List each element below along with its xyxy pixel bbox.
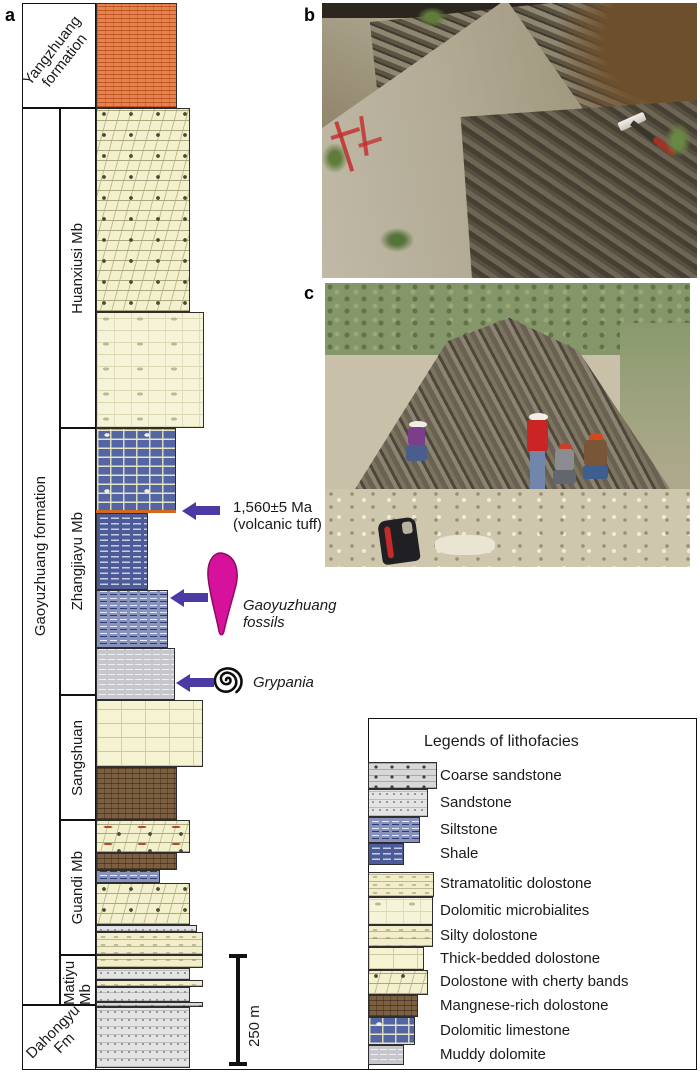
legend-swatch-dolomitic-limestone bbox=[368, 1017, 415, 1045]
legend-swatch-siltstone bbox=[368, 817, 420, 843]
grypania-text: Grypania bbox=[253, 674, 314, 691]
legend-swatch-stromatolitic-dolostone bbox=[368, 872, 434, 897]
photo-b-plant-1 bbox=[417, 7, 447, 27]
member-matiyu-label: Matiyu Mb bbox=[62, 955, 94, 1005]
person-2-jeans bbox=[530, 451, 545, 489]
layer-silty-dolostone-2 bbox=[96, 980, 203, 987]
tuff-note-line: (volcanic tuff) bbox=[233, 516, 322, 533]
layer-sandstone-band-3 bbox=[96, 987, 190, 1002]
fossils-line1: Gaoyuzhuang bbox=[243, 597, 336, 614]
scale-bar bbox=[236, 956, 240, 1064]
panel-c-label: c bbox=[304, 283, 314, 304]
layer-cherty-dolostone-lower bbox=[96, 883, 190, 925]
photo-b-plant-2 bbox=[380, 228, 414, 252]
legend-label-sandstone: Sandstone bbox=[440, 794, 512, 812]
volcanic-tuff-bed bbox=[96, 510, 176, 513]
layer-dolomitic-microbialites bbox=[96, 312, 204, 428]
member-matiyu-cell: Matiyu Mb bbox=[59, 955, 96, 1005]
person-4-torso bbox=[584, 440, 607, 466]
legend-label-muddy-dolomite: Muddy dolomite bbox=[440, 1046, 546, 1064]
legend-swatch-thick-bedded-dolostone bbox=[368, 947, 424, 970]
legend-swatch-sandstone bbox=[368, 789, 428, 817]
tuff-arrow bbox=[196, 506, 220, 515]
person-1-jeans bbox=[406, 445, 427, 461]
layer-cherty-dolostone-guandi bbox=[96, 820, 190, 853]
member-sangshuan-label: Sangshuan bbox=[69, 720, 86, 796]
photo-c-person-1 bbox=[405, 421, 431, 471]
layer-silty-dolostone-1 bbox=[96, 955, 203, 968]
legend-title: Legends of lithofacies bbox=[424, 733, 579, 751]
photo-c-person-2 bbox=[525, 413, 551, 491]
legend-swatch-silty-dolostone bbox=[368, 925, 433, 947]
photo-c-person-3 bbox=[553, 443, 579, 491]
legend-label-shale: Shale bbox=[440, 845, 478, 863]
layer-siltstone bbox=[96, 590, 168, 648]
scale-bar-bottom-cap bbox=[229, 1062, 247, 1066]
layer-thick-bedded-dolostone bbox=[96, 700, 203, 767]
layer-muddy-dolomite bbox=[96, 648, 175, 700]
member-zhangjiayu-cell: Zhangjiayu Mb bbox=[59, 428, 96, 695]
photo-c-backpack bbox=[377, 517, 421, 566]
photo-c-white-debris bbox=[435, 535, 495, 555]
fossils-text: Gaoyuzhuang fossils bbox=[243, 597, 336, 632]
member-guandi-label: Guandi Mb bbox=[69, 851, 86, 924]
member-sangshuan-cell: Sangshuan bbox=[59, 695, 96, 820]
scale-bar-top-cap bbox=[229, 954, 247, 958]
layer-shale bbox=[96, 513, 148, 590]
tuff-age-line: 1,560±5 Ma bbox=[233, 499, 322, 516]
legend-label-stromatolitic-dolostone: Stramatolitic dolostone bbox=[440, 875, 592, 893]
panel-b-label: b bbox=[304, 5, 315, 26]
layer-cherty-dolostone-upper bbox=[96, 108, 190, 312]
legend-label-silty-dolostone: Silty dolostone bbox=[440, 927, 538, 945]
photo-c-outcrop-people bbox=[325, 283, 690, 567]
legend-label-coarse-sandstone: Coarse sandstone bbox=[440, 767, 562, 785]
member-guandi-cell: Guandi Mb bbox=[59, 820, 96, 955]
layer-stromatolitic-dolostone bbox=[96, 932, 203, 955]
formation-gaoyuzhuang-label: Gaoyuzhuang formation bbox=[32, 476, 49, 636]
legend-swatch-muddy-dolomite bbox=[368, 1045, 404, 1065]
legend-swatch-manganese-dolostone bbox=[368, 995, 418, 1017]
legend-label-dolomitic-limestone: Dolomitic limestone bbox=[440, 1022, 570, 1040]
layer-siltstone-thin bbox=[96, 870, 160, 883]
legend-swatch-coarse-sandstone bbox=[368, 762, 437, 789]
member-huanxiusi-label: Huanxiusi Mb bbox=[69, 223, 86, 314]
formation-yangzhuang-cell: Yangzhuang formation bbox=[22, 3, 96, 108]
layer-dahongyu-sandstone bbox=[96, 1007, 190, 1068]
tuff-age-text: 1,560±5 Ma (volcanic tuff) bbox=[233, 499, 322, 534]
legend-swatch-dolostone-cherty-bands bbox=[368, 970, 428, 995]
person-3-legs bbox=[553, 470, 576, 484]
member-huanxiusi-cell: Huanxiusi Mb bbox=[59, 108, 96, 428]
legend-swatch-dolomitic-microbialites bbox=[368, 897, 433, 925]
person-2-red-jacket bbox=[527, 420, 548, 452]
legend-label-siltstone: Siltstone bbox=[440, 821, 498, 839]
fossils-line2: fossils bbox=[243, 614, 336, 631]
layer-sandstone-band-1 bbox=[96, 925, 197, 932]
layer-manganese-dolostone-2 bbox=[96, 853, 177, 870]
photo-b-outcrop-hammer bbox=[322, 3, 697, 278]
legend-label-dolomitic-microbialites: Dolomitic microbialites bbox=[440, 902, 589, 920]
legend-label-manganese-dolostone: Mangnese-rich dolostone bbox=[440, 997, 608, 1015]
person-1-torso bbox=[408, 427, 425, 446]
layer-sandstone-band-2 bbox=[96, 968, 190, 980]
panel-a-label: a bbox=[5, 5, 15, 26]
legend-swatch-shale bbox=[368, 843, 404, 865]
photo-c-person-4 bbox=[581, 433, 611, 485]
layer-dolomitic-limestone bbox=[96, 428, 176, 513]
formation-yangzhuang-label: Yangzhuang formation bbox=[21, 13, 97, 98]
formation-dahongyu-label: Dahongyu Fm bbox=[22, 1001, 95, 1074]
photo-b-plant-4 bbox=[665, 123, 691, 157]
legend-label-thick-bedded-dolostone: Thick-bedded dolostone bbox=[440, 950, 600, 968]
figure: a b c Yangzhuang formation Gaoyuzhuang f… bbox=[0, 0, 700, 1082]
grypania-arrow bbox=[190, 678, 214, 687]
layer-yangzhuang-dolomite bbox=[96, 3, 177, 108]
scale-bar-label: 250 m bbox=[246, 977, 263, 1047]
person-4-jeans bbox=[583, 465, 608, 479]
photo-b-plant-3 bbox=[322, 143, 348, 173]
member-zhangjiayu-label: Zhangjiayu Mb bbox=[69, 512, 86, 610]
fossils-arrow bbox=[184, 593, 208, 602]
formation-gaoyuzhuang-cell: Gaoyuzhuang formation bbox=[22, 108, 59, 1005]
formation-dahongyu-cell: Dahongyu Fm bbox=[22, 1005, 96, 1070]
legend-label-dolostone-cherty-bands: Dolostone with cherty bands bbox=[440, 973, 628, 991]
person-3-torso bbox=[555, 449, 574, 471]
layer-manganese-dolostone-1 bbox=[96, 767, 177, 820]
